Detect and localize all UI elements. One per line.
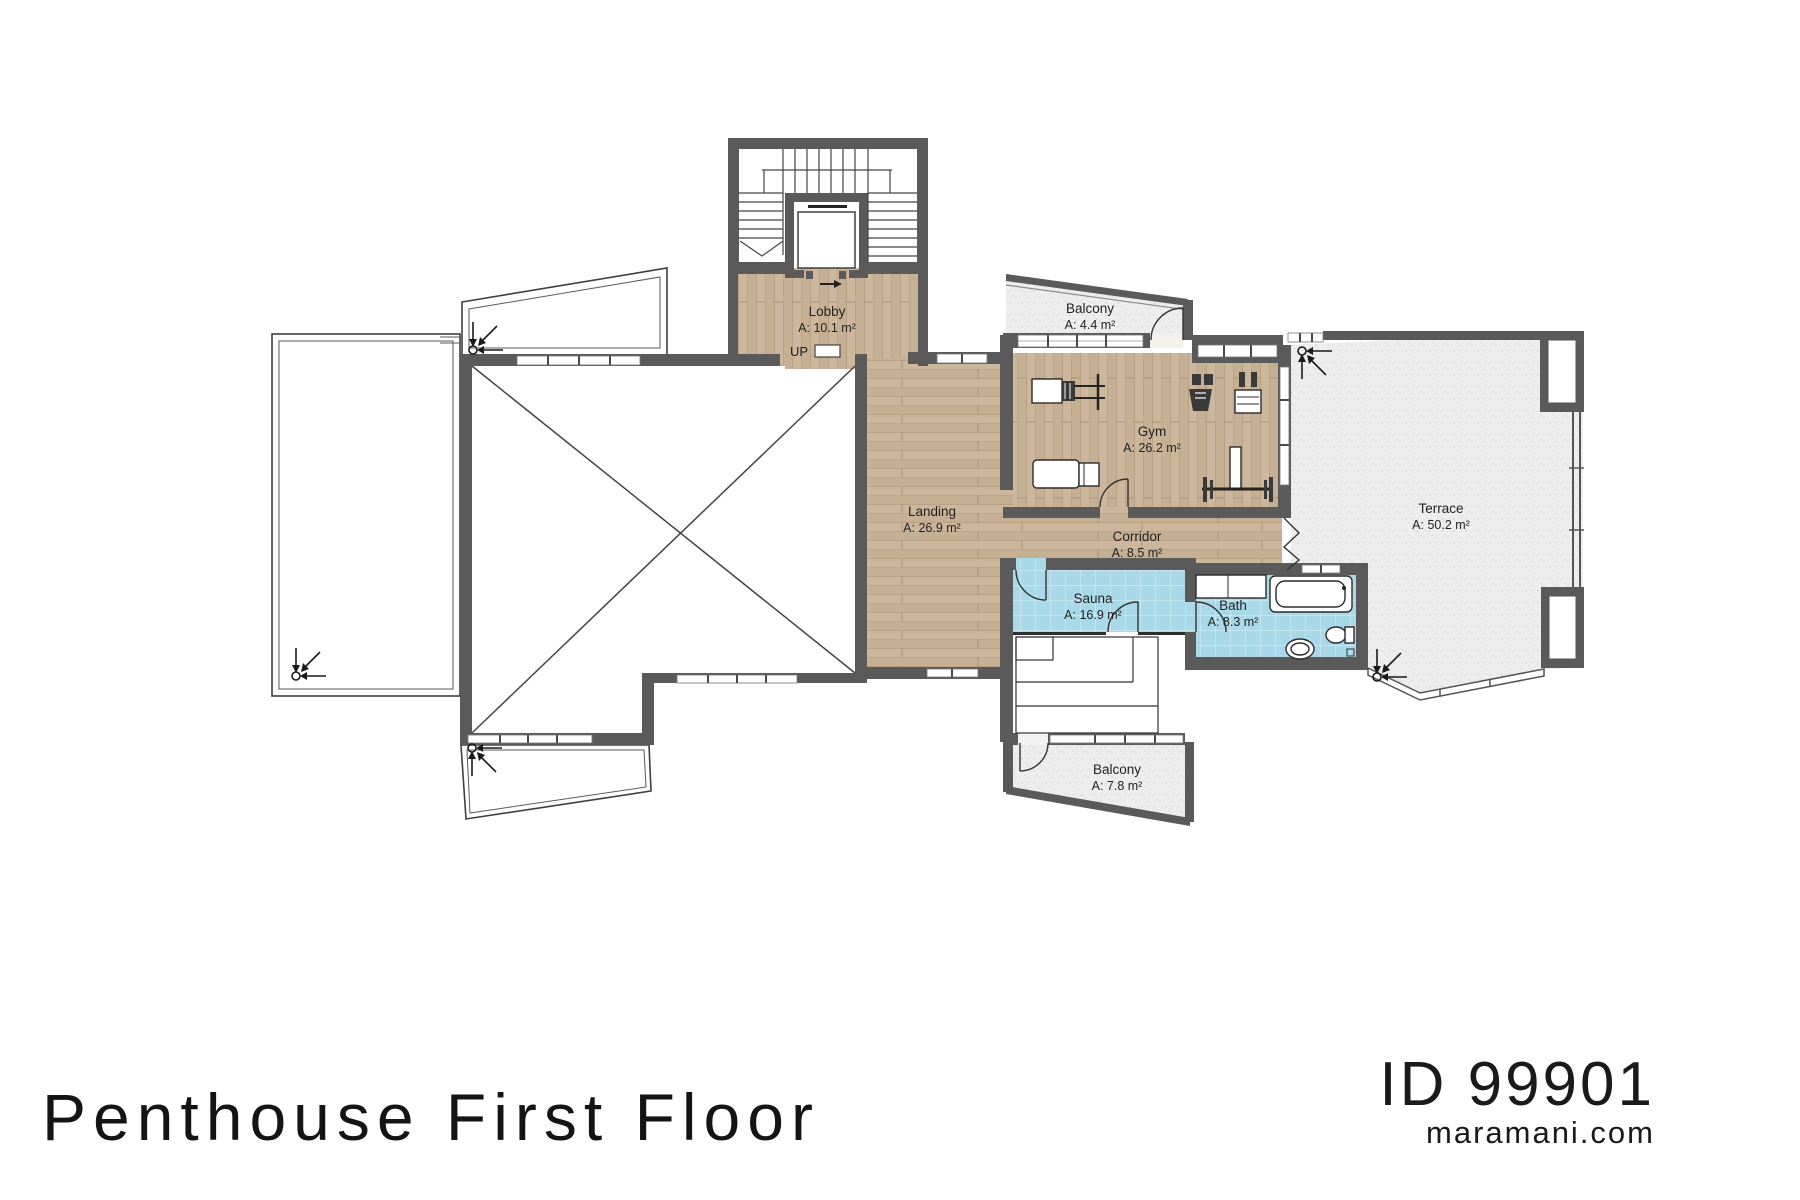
toilet-bowl <box>1326 627 1346 643</box>
landing-corridor-passage-floor <box>1000 490 1013 558</box>
window-gym-east <box>1280 367 1289 485</box>
room-label-balcony-bottom: Balcony <box>1093 762 1141 777</box>
room-area-sauna: A: 16.9 m² <box>1064 608 1122 622</box>
floor-plan-canvas: Lobby A: 10.1 m² Balcony A: 4.4 m² Gym A… <box>0 0 1800 1200</box>
window-void-top <box>517 356 640 365</box>
window-void-bottom-left <box>468 735 592 743</box>
room-label-lobby: Lobby <box>809 304 846 319</box>
stair-break-symbol <box>740 241 783 256</box>
elevator-door-line <box>808 205 847 208</box>
room-area-corridor: A: 8.5 m² <box>1112 546 1163 560</box>
up-step-symbol <box>815 345 840 357</box>
room-area-lobby: A: 10.1 m² <box>798 321 856 335</box>
toilet-tank <box>1345 627 1354 643</box>
void-x-diagonal-1 <box>472 366 855 673</box>
window-balcony-gym <box>1018 335 1143 347</box>
room-label-gym: Gym <box>1138 424 1167 439</box>
bathtub-inner <box>1276 581 1345 607</box>
room-area-balcony-top: A: 4.4 m² <box>1065 318 1116 332</box>
room-area-terrace: A: 50.2 m² <box>1412 518 1470 532</box>
room-area-landing: A: 26.9 m² <box>903 521 961 535</box>
lower-left-balcony-outline <box>461 745 651 819</box>
website: maramani.com <box>1426 1115 1655 1150</box>
elevator <box>798 205 855 268</box>
window-landing-top <box>937 354 987 363</box>
stair-up-label: UP <box>790 344 808 359</box>
room-label-sauna: Sauna <box>1073 591 1113 606</box>
sink-basin <box>1291 643 1309 655</box>
window-void-bottom-right <box>677 675 797 683</box>
vanity-counter <box>1196 575 1266 598</box>
window-gym-northeast <box>1198 345 1277 357</box>
room-label-balcony-top: Balcony <box>1066 301 1114 316</box>
floor-plan-page: Lobby A: 10.1 m² Balcony A: 4.4 m² Gym A… <box>0 0 1800 1200</box>
window-bath-top <box>1302 565 1340 573</box>
room-area-bath: A: 8.3 m² <box>1208 615 1259 629</box>
sheet-title: Penthouse First Floor <box>42 1080 820 1154</box>
window-terrace-topleft <box>1288 333 1323 342</box>
bathtub-drain <box>1342 586 1346 590</box>
elevator-car <box>798 212 855 268</box>
window-landing-bottom <box>927 669 978 677</box>
window-bench-room-bottom <box>1050 735 1183 743</box>
room-label-landing: Landing <box>908 504 956 519</box>
workout-bench <box>1033 460 1099 488</box>
left-terrace-outline <box>272 334 460 696</box>
room-label-terrace: Terrace <box>1418 501 1463 516</box>
room-area-balcony-bottom: A: 7.8 m² <box>1092 779 1143 793</box>
room-area-gym: A: 26.2 m² <box>1123 441 1181 455</box>
plan-id: ID 99901 <box>1379 1050 1655 1119</box>
room-label-bath: Bath <box>1219 598 1247 613</box>
sheet-titles: Penthouse First Floor ID 99901 maramani.… <box>42 1050 1655 1154</box>
room-label-corridor: Corridor <box>1113 529 1162 544</box>
